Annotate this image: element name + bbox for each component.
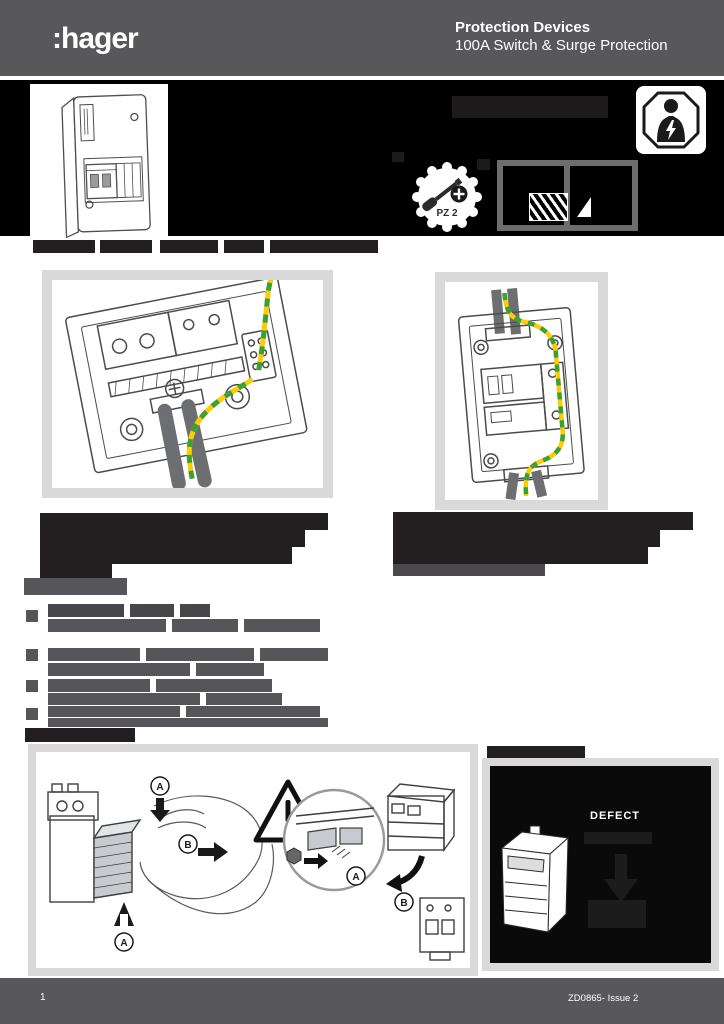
footer-bar: 1 ZD0865- Issue 2 [0, 978, 724, 1024]
document-reference: ZD0865- Issue 2 [568, 993, 638, 1004]
stripped-cable-icon [529, 193, 568, 221]
page-title: Protection Devices [455, 19, 668, 37]
redacted-text-bar [584, 832, 652, 844]
redacted-text-bar [48, 648, 140, 661]
redacted-text-bar [40, 547, 292, 564]
cartridge-replacement-drawing: A B A A [36, 752, 470, 968]
redacted-text-bar [393, 512, 693, 530]
redacted-text-bar [24, 578, 127, 595]
arrow-down-icon [604, 854, 638, 902]
redacted-text-bar [172, 619, 238, 632]
electrician-icon-box [636, 86, 706, 154]
redacted-text-bar [393, 547, 648, 564]
redacted-text-bar [244, 619, 320, 632]
redacted-text-bar [48, 663, 190, 676]
svg-text:A: A [120, 938, 127, 949]
redacted-text-bar [393, 530, 660, 547]
cable-end-icon [577, 197, 591, 217]
redacted-text-bar [26, 708, 38, 720]
redacted-text-bar [224, 240, 264, 253]
cable-spec-box [497, 160, 638, 231]
redacted-text-bar [40, 564, 112, 579]
redacted-text-bar [477, 159, 490, 170]
redacted-text-bar [26, 610, 38, 622]
redacted-text-bar [48, 706, 180, 717]
redacted-text-bar [48, 718, 328, 727]
redacted-text-bar [48, 604, 124, 617]
redacted-text-bar [48, 619, 166, 632]
redacted-text-bar [156, 679, 272, 692]
redacted-text-bar [487, 746, 585, 758]
pz2-label: PZ 2 [436, 208, 458, 219]
consumer-unit-drawing [30, 84, 168, 246]
figure-cartridge-replacement: A B A A [28, 744, 478, 976]
redacted-text-bar [260, 648, 328, 661]
redacted-text-bar [33, 240, 95, 253]
redacted-text-bar [270, 240, 378, 253]
redacted-text-bar [588, 900, 646, 928]
figure-spd-wiring-left [42, 270, 333, 498]
svg-text:A: A [352, 872, 359, 883]
figure-spd-wiring-right [435, 272, 608, 510]
redacted-text-bar [100, 240, 152, 253]
consumer-unit-portrait-drawing [445, 282, 598, 500]
redacted-text-bar [206, 693, 282, 705]
redacted-text-bar [26, 649, 38, 661]
redacted-text-bar [160, 240, 218, 253]
pz2-screwdriver-icon: PZ 2 [410, 160, 484, 234]
redacted-text-bar [392, 152, 404, 162]
status-indication-box: DEFECT [482, 758, 719, 971]
defect-status-label: DEFECT [590, 810, 640, 822]
redacted-text-bar [40, 513, 328, 530]
svg-text:B: B [184, 840, 191, 851]
page: { "header": { "logo": ":hager", "title":… [0, 0, 724, 1024]
page-number: 1 [40, 992, 46, 1003]
svg-text:B: B [400, 898, 407, 909]
redacted-text-bar [48, 693, 200, 705]
qualified-electrician-icon [636, 86, 706, 154]
header-bar: :hager Protection Devices 100A Switch & … [0, 0, 724, 76]
hager-logo: :hager [52, 22, 138, 56]
redacted-text-bar [130, 604, 174, 617]
redacted-text-bar [26, 680, 38, 692]
redacted-text-bar [186, 706, 320, 717]
redacted-text-bar [180, 604, 210, 617]
redacted-text-bar [25, 728, 135, 742]
consumer-unit-open-drawing [52, 280, 323, 488]
page-subtitle: 100A Switch & Surge Protection [455, 37, 668, 55]
spd-cartridge-drawing [492, 820, 578, 940]
product-image-box [30, 84, 168, 246]
header-titles: Protection Devices 100A Switch & Surge P… [455, 19, 668, 55]
redacted-text-bar [452, 96, 608, 118]
redacted-text-bar [196, 663, 264, 676]
redacted-text-bar [40, 530, 305, 547]
redacted-text-bar [393, 564, 545, 576]
redacted-text-bar [48, 679, 150, 692]
redacted-text-bar [146, 648, 254, 661]
svg-text:A: A [156, 782, 163, 793]
